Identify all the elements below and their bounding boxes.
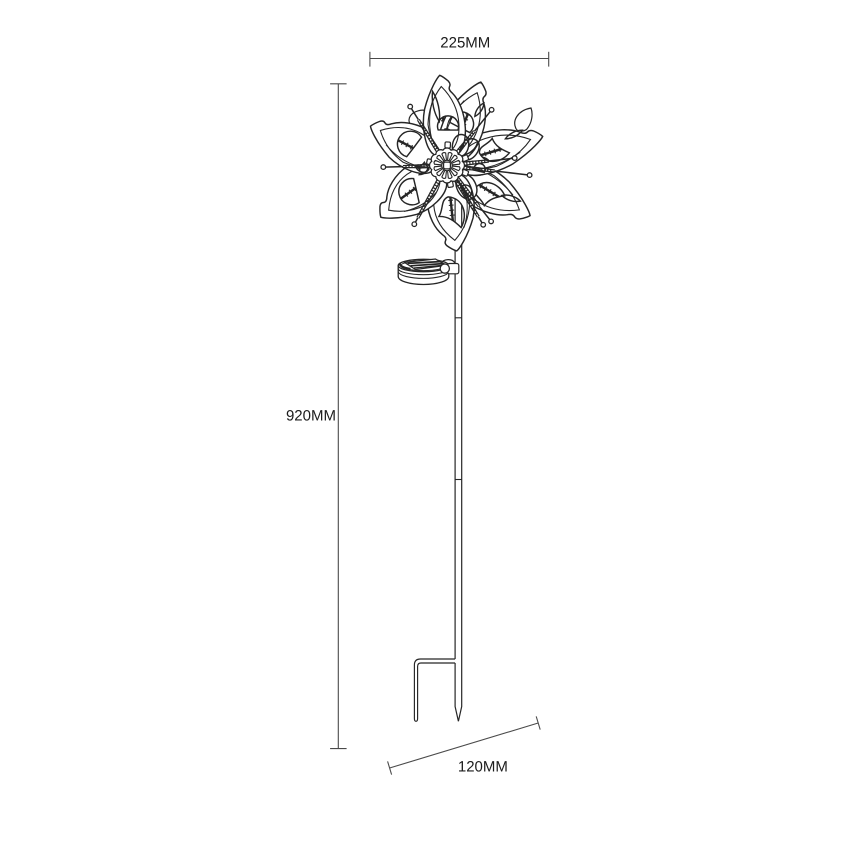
svg-text:225MM: 225MM xyxy=(440,35,490,52)
svg-text:920MM: 920MM xyxy=(286,407,336,424)
svg-text:120MM: 120MM xyxy=(458,758,508,775)
